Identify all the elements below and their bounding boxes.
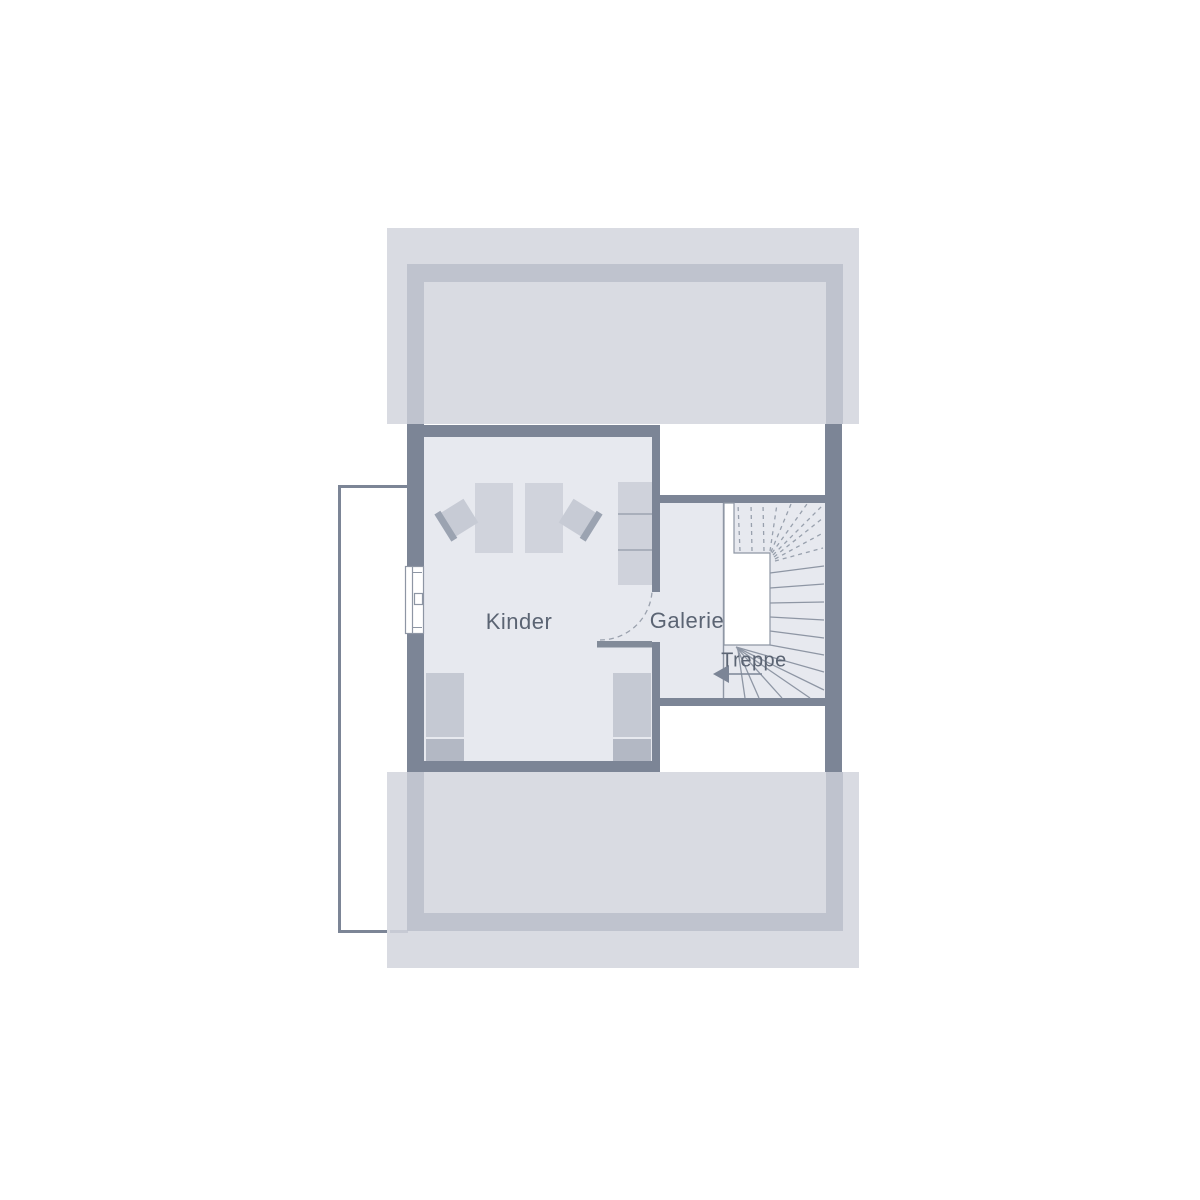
room-label-kinder: Kinder <box>486 609 553 635</box>
chair-left <box>434 497 479 542</box>
chair-right <box>558 497 603 542</box>
floor-plan-canvas: Kinder Galerie Treppe <box>0 0 1200 1200</box>
door-swing-arc <box>600 592 652 640</box>
room-label-treppe: Treppe <box>721 650 787 673</box>
door-symbol <box>597 592 652 648</box>
plan-detail-overlay <box>0 0 1200 1200</box>
window-symbol <box>406 567 424 634</box>
stair-treads-right <box>770 566 824 655</box>
room-label-galerie: Galerie <box>650 608 724 634</box>
door-leaf <box>597 641 652 648</box>
